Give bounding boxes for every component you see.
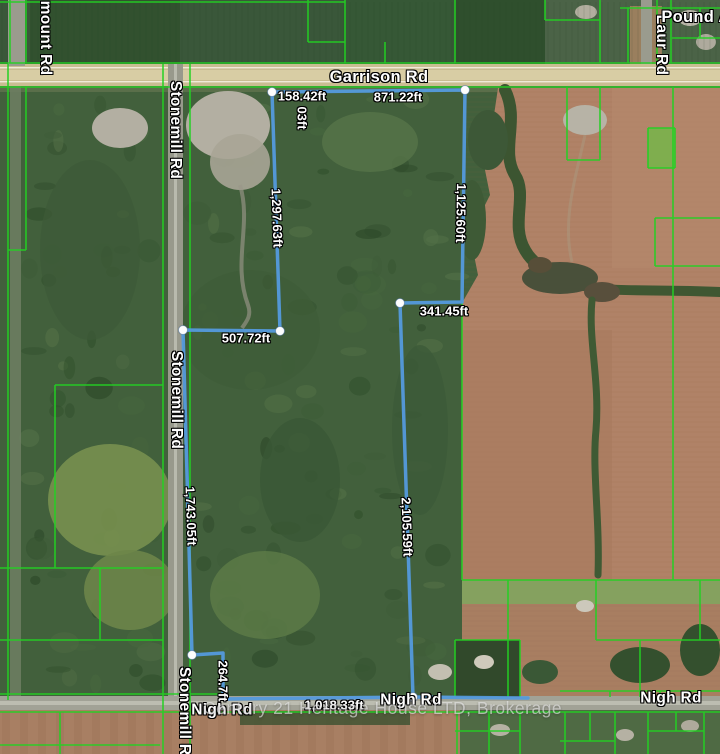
aerial-listing-map: 03ft 158.42ft 871.22ft 1,297.63ft 1,125.… <box>0 0 720 754</box>
road-label-stonemill-mid: Stonemill Rd <box>168 351 184 449</box>
measurement-east-lower: 2,105.59ft <box>399 497 414 557</box>
road-label-pound-partial: Pound A <box>661 9 720 26</box>
measurement-east-upper: 1,125.60ft <box>454 183 468 242</box>
brokerage-watermark: Century 21 Heritage House LTD, Brokerage <box>203 698 562 719</box>
measurement-stonemill-side: 1,743.05ft <box>183 486 198 546</box>
vertex-dot <box>179 326 188 335</box>
measurement-hidden-partial: 03ft <box>296 106 309 129</box>
measurement-west-upper: 1,297.63ft <box>269 188 284 248</box>
road-label-nigh-right: Nigh Rd <box>640 690 702 706</box>
road-label-mount-partial: mount Rd <box>37 1 53 76</box>
vertex-dot <box>461 86 470 95</box>
measurement-east-jog: 341.45ft <box>420 305 468 318</box>
measurement-garrison-east: 871.22ft <box>374 91 422 104</box>
measurement-south-jog: 264.7ft <box>217 660 230 701</box>
road-label-stonemill-bottom: Stonemill Rd <box>176 667 192 754</box>
farmland-east <box>458 88 720 580</box>
measurement-garrison-west: 158.42ft <box>278 90 326 103</box>
road-label-stonemill-top: Stonemill Rd <box>167 81 183 179</box>
satellite-map-canvas <box>0 0 720 754</box>
measurement-west-jog: 507.72ft <box>222 332 270 345</box>
vertex-dot <box>276 327 285 336</box>
road-label-garrison: Garrison Rd <box>330 69 429 86</box>
vertex-dot <box>188 651 197 660</box>
vertex-dot <box>268 88 277 97</box>
vertex-dot <box>396 299 405 308</box>
